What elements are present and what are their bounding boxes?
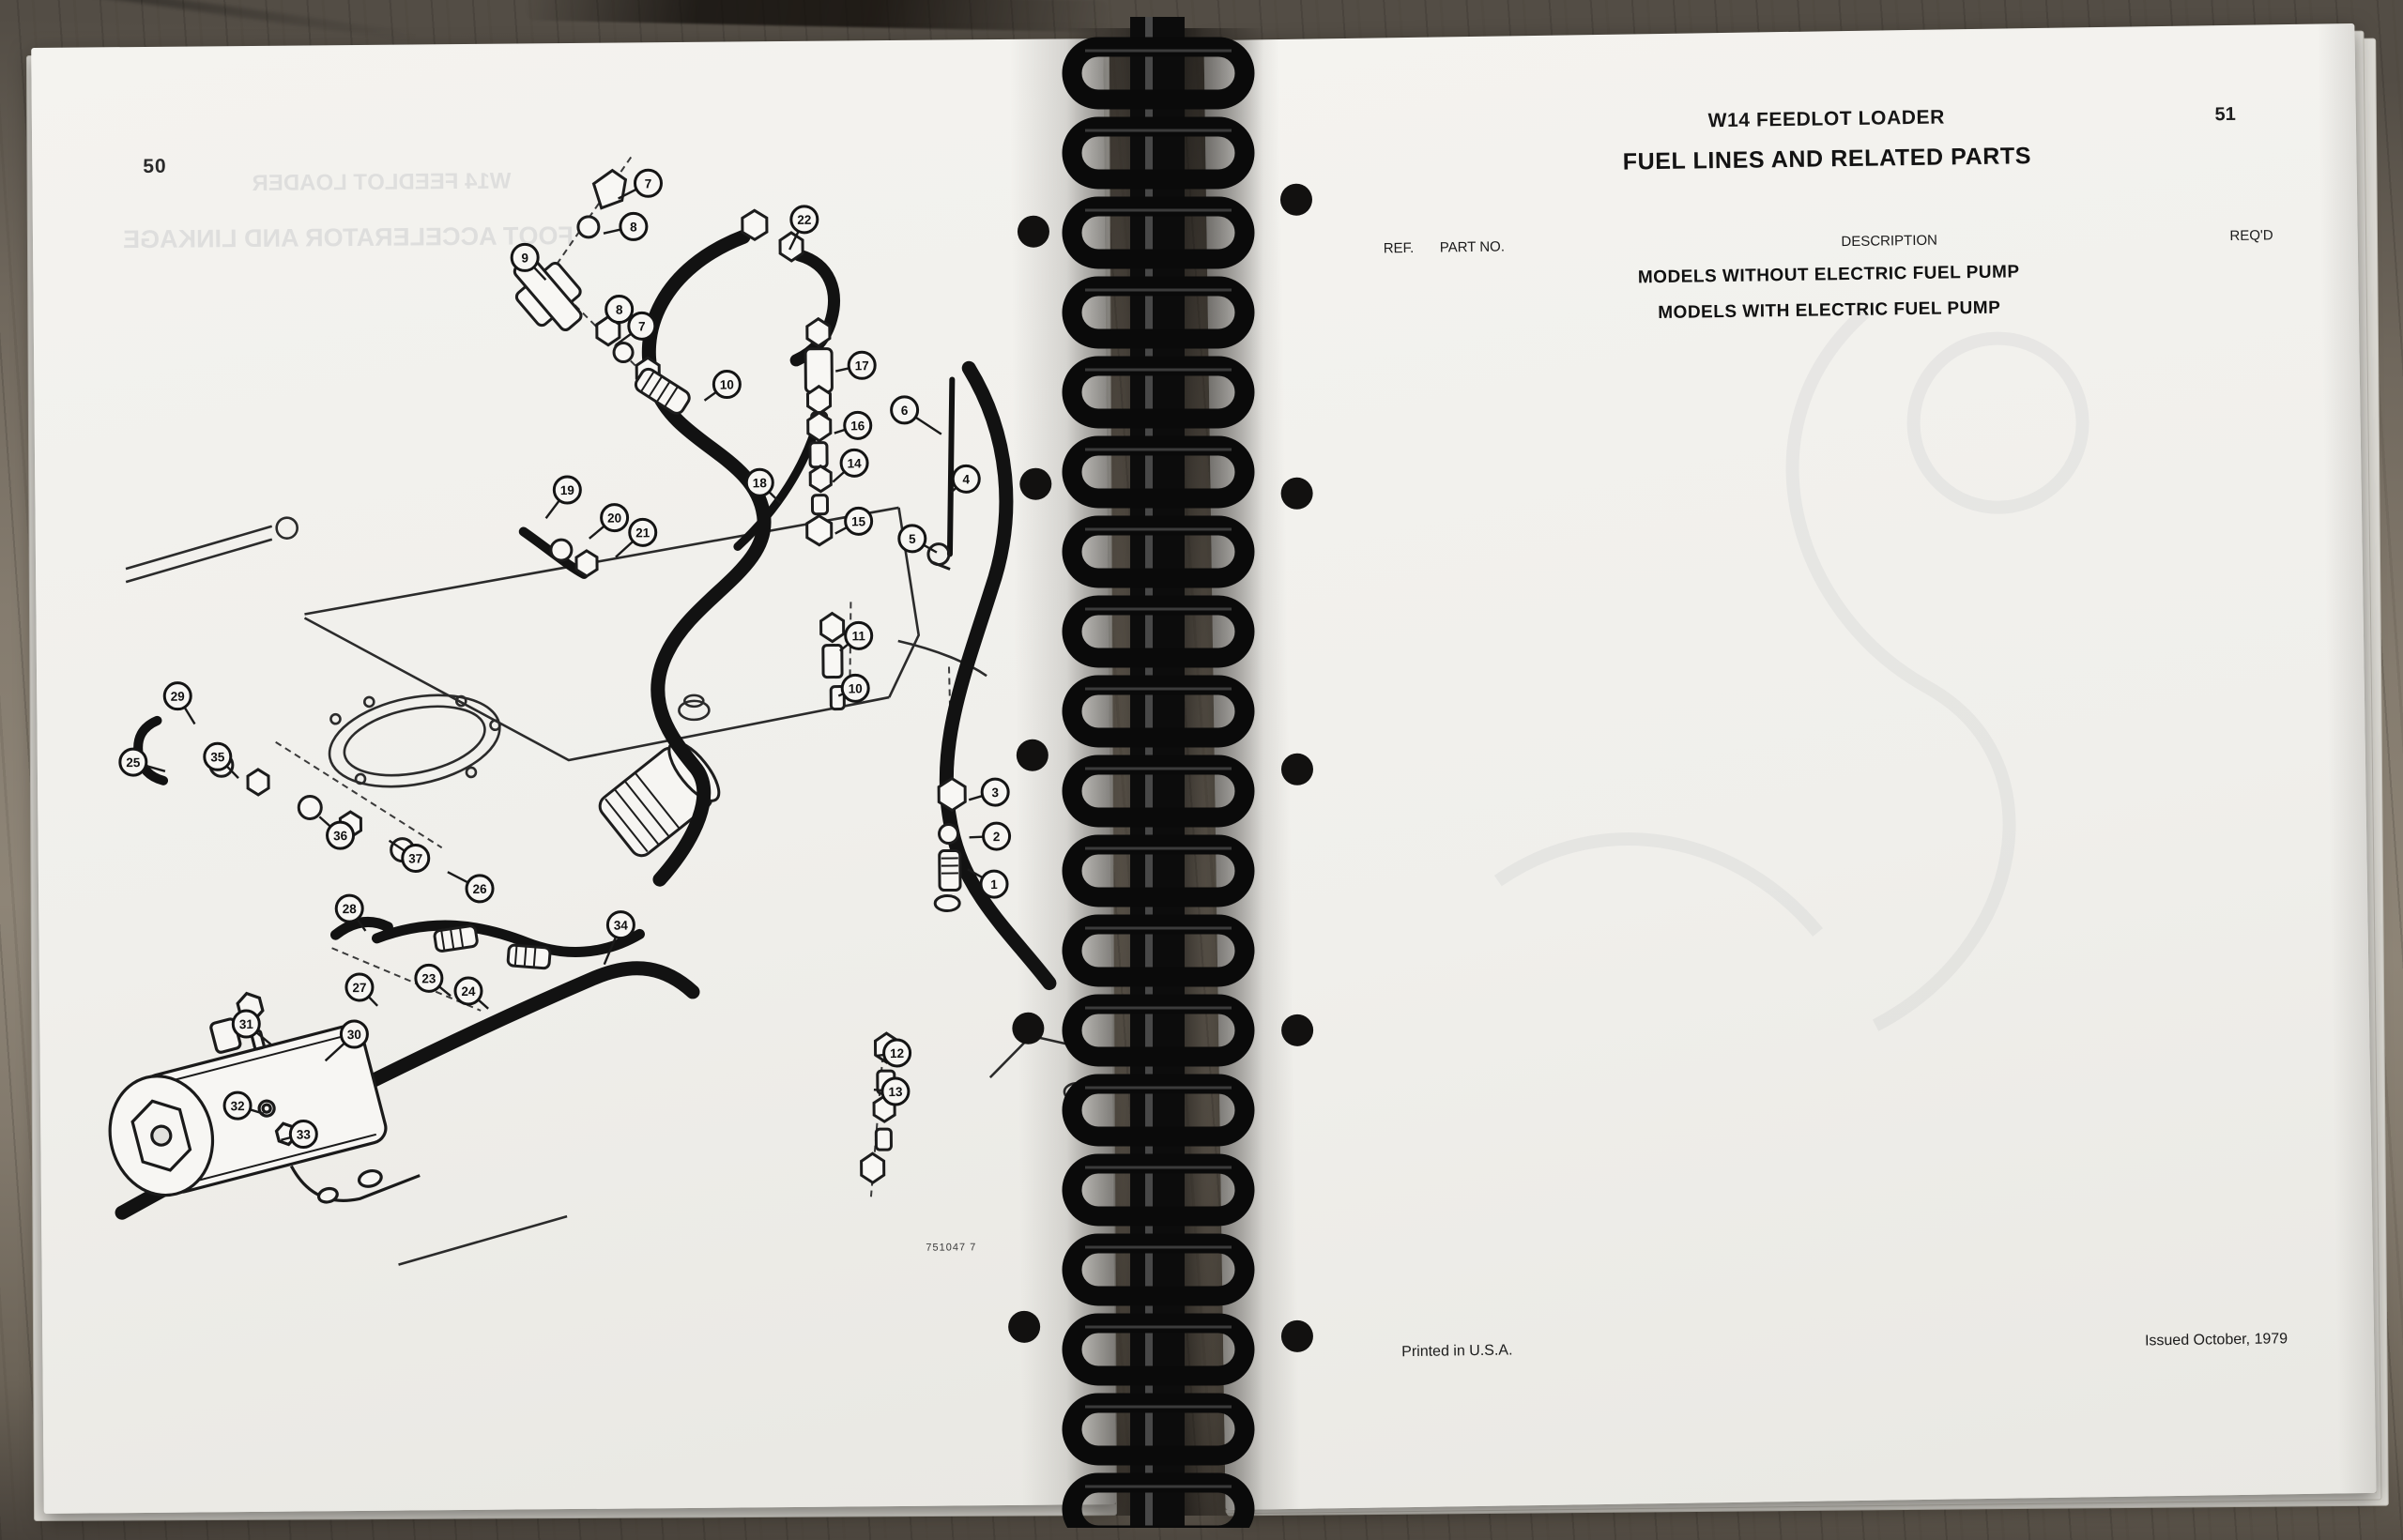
- callout-number: 1: [990, 877, 998, 892]
- header-ref: REF.: [1384, 239, 1440, 256]
- header-reqd: REQ'D: [2213, 227, 2273, 244]
- callout-number: 33: [297, 1127, 312, 1141]
- header-description: DESCRIPTION: [1566, 228, 2213, 253]
- ghost-title-1: W14 FEEDLOT LOADER: [252, 169, 511, 196]
- parts-table-header: REF. PART NO. DESCRIPTION REQ'D: [1384, 227, 2273, 256]
- callout-number: 6: [901, 404, 909, 418]
- callout-number: 12: [890, 1046, 904, 1060]
- wood-grain-streak: [29, 0, 421, 42]
- wood-grain-gash: [526, 0, 1109, 32]
- footer-issued-date: Issued October, 1979: [2145, 1331, 2288, 1349]
- callout-number: 17: [855, 358, 869, 373]
- right-page: W14 FEEDLOT LOADER 51 FUEL LINES AND REL…: [1203, 23, 2376, 1510]
- callout-number: 36: [333, 829, 348, 843]
- parts-table-body: MODELS WITHOUT ELECTRIC FUEL PUMPMODELS …: [1384, 258, 2274, 328]
- callout-number: 27: [352, 981, 366, 995]
- callout-number: 34: [614, 918, 629, 932]
- callout-number: 25: [126, 755, 141, 770]
- callout-number: 14: [848, 456, 863, 470]
- callout-number: 4: [962, 472, 970, 486]
- page-footer: Printed in U.S.A. Issued October, 1979: [1401, 1331, 2288, 1361]
- callout-number: 10: [720, 377, 734, 391]
- exploded-parts-diagram: W14 FEEDLOT LOADER FOOT ACCELERATOR AND …: [31, 38, 1116, 1514]
- callout-number: 8: [616, 303, 623, 317]
- callout-number: 26: [472, 882, 487, 896]
- callout-number: 15: [851, 514, 866, 528]
- callout-number: 20: [607, 511, 621, 526]
- header-part-no: PART NO.: [1440, 237, 1566, 255]
- callout-number: 18: [753, 476, 768, 490]
- punched-hole: [1281, 754, 1314, 786]
- table-section-heading: MODELS WITH ELECTRIC FUEL PUMP: [1385, 294, 2274, 328]
- callout-number: 3: [991, 785, 999, 800]
- callout-number: 19: [560, 483, 574, 497]
- callout-number: 10: [849, 681, 863, 695]
- punched-hole: [1281, 1320, 1314, 1353]
- callout-number: 32: [230, 1099, 244, 1113]
- callout-number: 37: [408, 851, 422, 865]
- punched-hole: [1280, 183, 1313, 216]
- left-page: 50 W14 FEEDLOT LOADER FOOT ACCELERATOR A…: [31, 38, 1116, 1514]
- table-section-heading: MODELS WITHOUT ELECTRIC FUEL PUMP: [1384, 258, 2273, 292]
- callout-number: 9: [521, 251, 528, 265]
- punched-hole: [1280, 478, 1313, 511]
- footer-printed-in: Printed in U.S.A.: [1401, 1342, 1513, 1361]
- callout-number: 23: [421, 971, 436, 985]
- page-subtitle: FUEL LINES AND RELATED PARTS: [1384, 139, 2270, 179]
- punched-hole: [1008, 1311, 1040, 1343]
- ghost-title-2: FOOT ACCELERATOR AND LINKAGE: [123, 221, 574, 253]
- callout-number: 8: [630, 220, 637, 234]
- callout-number: 31: [239, 1017, 254, 1031]
- page-title: W14 FEEDLOT LOADER: [1384, 101, 2270, 137]
- callout-number: 21: [635, 526, 650, 540]
- right-page-number: 51: [2214, 104, 2236, 126]
- callout-number: 2: [993, 830, 1001, 844]
- punched-hole: [1018, 216, 1049, 248]
- callout-number: 16: [850, 419, 865, 433]
- punched-hole: [1281, 1014, 1314, 1047]
- callout-number: 29: [171, 690, 185, 704]
- callout-number: 22: [797, 213, 811, 227]
- callout-number: 28: [343, 902, 358, 916]
- figure-number: 751047 7: [926, 1242, 976, 1253]
- punched-hole: [1017, 740, 1048, 771]
- callout-number: 5: [909, 532, 916, 546]
- callout-number: 11: [852, 629, 866, 643]
- callout-number: 30: [347, 1028, 361, 1042]
- callout-number: 7: [645, 176, 652, 191]
- callout-number: 7: [638, 319, 646, 333]
- callout-number: 13: [888, 1085, 903, 1099]
- callout-number: 35: [210, 750, 225, 764]
- callout-number: 24: [461, 984, 476, 999]
- punched-hole: [1012, 1013, 1044, 1044]
- comb-binding: [1048, 17, 1282, 1528]
- parts-table: REF. PART NO. DESCRIPTION REQ'D MODELS W…: [1384, 227, 2274, 341]
